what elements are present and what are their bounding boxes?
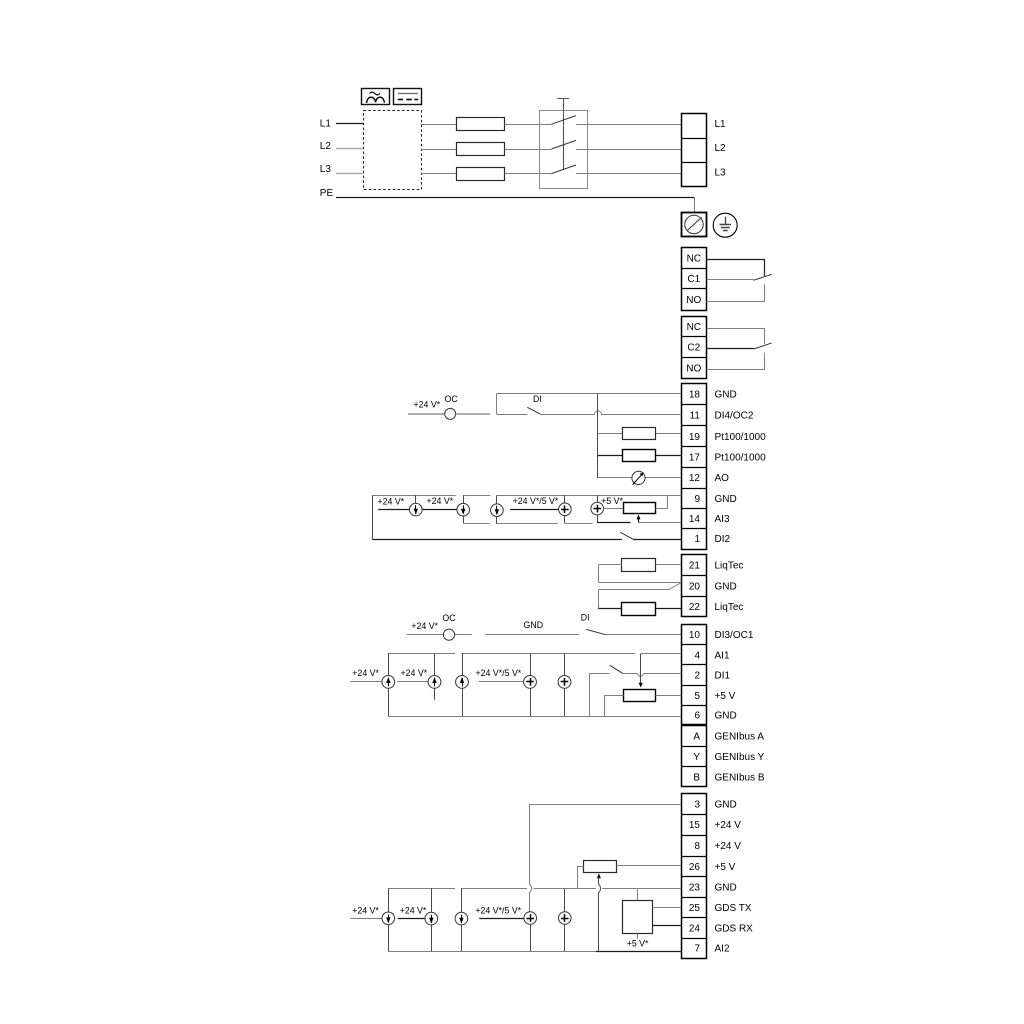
svg-text:+5 V: +5 V <box>715 691 736 702</box>
svg-text:Y: Y <box>693 752 700 763</box>
svg-text:GND: GND <box>715 494 737 505</box>
svg-text:GENIbus A: GENIbus A <box>715 732 765 743</box>
svg-text:+5 V: +5 V <box>715 862 736 873</box>
svg-text:+24 V*: +24 V* <box>378 496 405 506</box>
svg-text:20: 20 <box>689 581 701 592</box>
svg-text:Pt100/1000: Pt100/1000 <box>715 432 767 443</box>
svg-text:+24 V*: +24 V* <box>414 399 441 409</box>
svg-text:L1: L1 <box>320 118 332 129</box>
svg-text:GDS RX: GDS RX <box>715 923 754 934</box>
svg-text:17: 17 <box>689 452 701 463</box>
svg-text:DI2: DI2 <box>715 534 731 545</box>
svg-text:6: 6 <box>694 711 700 722</box>
svg-text:+24 V*: +24 V* <box>400 906 427 916</box>
svg-text:+24 V*/5 V*: +24 V*/5 V* <box>475 906 521 916</box>
svg-text:C1: C1 <box>687 274 700 285</box>
svg-text:7: 7 <box>694 944 700 955</box>
svg-text:2: 2 <box>694 671 700 682</box>
svg-text:NC: NC <box>687 253 701 264</box>
svg-text:GND: GND <box>524 620 544 630</box>
svg-text:AO: AO <box>715 473 730 484</box>
svg-text:21: 21 <box>689 561 701 572</box>
svg-text:22: 22 <box>689 602 701 613</box>
svg-text:14: 14 <box>689 514 701 525</box>
svg-text:OC: OC <box>442 613 456 623</box>
svg-text:L2: L2 <box>715 143 727 154</box>
svg-text:8: 8 <box>694 841 700 852</box>
svg-text:+24 V*: +24 V* <box>352 906 379 916</box>
svg-text:+24 V*/5 V*: +24 V*/5 V* <box>476 668 522 678</box>
svg-text:26: 26 <box>689 862 701 873</box>
svg-text:NC: NC <box>687 322 701 333</box>
svg-text:NO: NO <box>686 363 701 374</box>
svg-text:GND: GND <box>715 389 737 400</box>
svg-text:GDS TX: GDS TX <box>715 903 752 914</box>
svg-text:+5 V*: +5 V* <box>601 496 623 506</box>
svg-text:A: A <box>693 732 700 743</box>
svg-text:L2: L2 <box>320 141 332 152</box>
svg-text:15: 15 <box>689 820 701 831</box>
svg-text:Pt100/1000: Pt100/1000 <box>715 452 767 463</box>
svg-text:GND: GND <box>715 799 737 810</box>
svg-text:4: 4 <box>694 650 700 661</box>
svg-text:23: 23 <box>689 882 701 893</box>
svg-text:GENIbus Y: GENIbus Y <box>715 752 765 763</box>
svg-text:OC: OC <box>445 394 459 404</box>
svg-text:12: 12 <box>689 473 701 484</box>
svg-text:1: 1 <box>694 534 700 545</box>
svg-text:+24 V*: +24 V* <box>352 668 379 678</box>
svg-text:GND: GND <box>715 882 737 893</box>
svg-text:9: 9 <box>694 494 700 505</box>
svg-text:AI3: AI3 <box>715 514 730 525</box>
svg-text:+24 V*: +24 V* <box>411 621 438 631</box>
svg-text:GND: GND <box>715 711 737 722</box>
svg-text:5: 5 <box>694 691 700 702</box>
svg-text:LiqTec: LiqTec <box>715 561 744 572</box>
svg-text:GENIbus B: GENIbus B <box>715 773 765 784</box>
svg-text:L3: L3 <box>320 164 332 175</box>
svg-text:18: 18 <box>689 389 701 400</box>
svg-text:24: 24 <box>689 923 701 934</box>
svg-text:19: 19 <box>689 432 701 443</box>
svg-text:L3: L3 <box>715 168 727 179</box>
svg-text:AI1: AI1 <box>715 650 730 661</box>
svg-text:DI: DI <box>533 394 542 404</box>
svg-text:L1: L1 <box>715 119 727 130</box>
svg-text:NO: NO <box>686 295 701 306</box>
svg-text:3: 3 <box>694 799 700 810</box>
svg-text:AI2: AI2 <box>715 944 730 955</box>
svg-text:+24 V: +24 V <box>715 841 742 852</box>
svg-text:10: 10 <box>689 630 701 641</box>
svg-text:+24 V*: +24 V* <box>401 668 428 678</box>
svg-text:DI1: DI1 <box>715 671 731 682</box>
svg-text:DI: DI <box>581 612 590 622</box>
svg-text:DI4/OC2: DI4/OC2 <box>715 411 754 422</box>
svg-text:DI3/OC1: DI3/OC1 <box>715 630 754 641</box>
svg-text:11: 11 <box>690 411 701 422</box>
svg-text:+5 V*: +5 V* <box>627 938 649 948</box>
svg-text:C2: C2 <box>687 343 700 354</box>
svg-text:+24 V: +24 V <box>715 820 742 831</box>
svg-text:B: B <box>693 773 700 784</box>
svg-text:+24 V*/5 V*: +24 V*/5 V* <box>513 496 559 506</box>
svg-text:+24 V*: +24 V* <box>427 496 454 506</box>
svg-text:PE: PE <box>320 188 334 199</box>
svg-text:GND: GND <box>715 581 737 592</box>
svg-text:25: 25 <box>689 903 701 914</box>
svg-text:LiqTec: LiqTec <box>715 602 744 613</box>
